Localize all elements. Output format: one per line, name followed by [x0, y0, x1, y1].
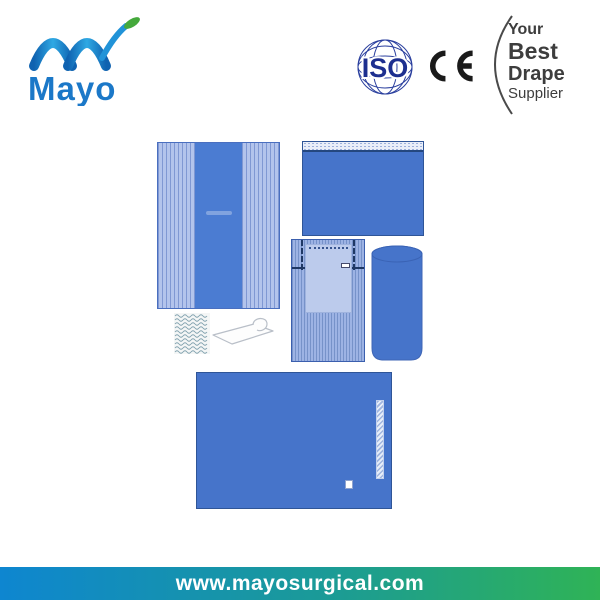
drape-fold-mark [206, 211, 232, 215]
iso-label: ISO [362, 53, 409, 83]
pocket-panel [305, 244, 352, 313]
seam-bar-left [292, 267, 305, 269]
iso-certification-icon: ISO [352, 36, 418, 98]
ce-mark-icon [420, 46, 476, 86]
logo-wordmark: Mayo [28, 70, 116, 106]
badge-text: Your Best Drape Supplier [508, 22, 565, 101]
badge-line-supplier: Supplier [508, 86, 565, 101]
adhesive-edge-drape [302, 141, 424, 236]
label-patch [345, 480, 353, 489]
seam-bar-right [351, 267, 364, 269]
badge-line-your: Your [508, 22, 565, 38]
pocket-stitch-line [309, 247, 348, 249]
adhesive-strip [303, 142, 423, 152]
reinforcement-strip [376, 400, 384, 479]
product-banner: Mayo ISO Your Best Drape Supplier [0, 0, 600, 600]
badge-line-drape: Drape [508, 64, 565, 84]
stitch-dash-left [301, 240, 303, 270]
pocket-tab [341, 263, 350, 268]
crepe-paper-sheet [174, 313, 210, 354]
badge-line-best: Best [508, 40, 565, 63]
logo-m-arcs-icon [34, 26, 126, 66]
footer-bar: www.mayosurgical.com [0, 567, 600, 600]
rolled-table-cover [371, 244, 423, 362]
stitch-dash-right [353, 240, 355, 270]
side-drape-with-reinforced-center [157, 142, 280, 309]
wave-pattern-icon [175, 315, 207, 354]
adhesive-fixation-strap [211, 316, 277, 350]
back-table-cover [196, 372, 392, 509]
drape-center-panel [195, 143, 242, 308]
website-url: www.mayosurgical.com [176, 572, 424, 596]
pocket-drape [291, 239, 365, 362]
mayo-logo: Mayo [26, 14, 158, 106]
supplier-badge: Your Best Drape Supplier [482, 14, 592, 118]
